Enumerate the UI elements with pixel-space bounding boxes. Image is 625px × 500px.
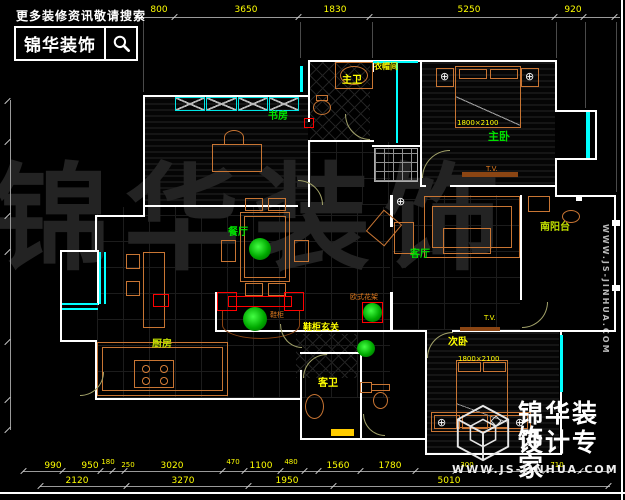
dim-label: 480 (282, 459, 300, 466)
extension-line (585, 22, 586, 108)
window (586, 112, 590, 158)
window (560, 335, 563, 392)
dim-label: 1100 (248, 462, 274, 471)
wall-segment (614, 195, 616, 332)
coffee-table (443, 228, 491, 254)
plant (357, 340, 375, 357)
wall-segment (420, 145, 422, 187)
study-desk (212, 144, 262, 172)
label-second-tv: T.V. (484, 315, 496, 322)
label-flower-stand: 欧式花架 (350, 294, 378, 301)
wash-basin (360, 382, 372, 393)
bath-sink (305, 394, 324, 419)
room-label-master-bath: 主卫 (342, 76, 362, 86)
study-chair (224, 130, 244, 145)
dim-tick (4, 427, 10, 433)
cabinet-x-cell (269, 97, 299, 111)
wall-segment (95, 215, 145, 217)
wall-segment (60, 250, 97, 252)
tv-cabinet (460, 327, 500, 331)
dim-label: 470 (224, 459, 242, 466)
plant (249, 238, 271, 260)
wall-segment (95, 398, 302, 400)
label-second-bed-size: 1800×2100 (458, 356, 500, 363)
extension-line (372, 22, 373, 58)
extension-line (300, 22, 301, 58)
dim-label: 3270 (168, 477, 198, 486)
room-label-kitchen: 厨房 (152, 340, 172, 350)
window (104, 252, 106, 304)
toilet-tank (316, 95, 328, 101)
room-label-master-bedroom: 主卧 (488, 131, 510, 142)
floor-plan-canvas: 锦华装饰 WWW.JS-JINHUA.COM (0, 0, 625, 500)
room-label-second-bedroom: 次卧 (448, 338, 468, 348)
dim-tick (605, 483, 611, 489)
window (300, 66, 303, 92)
footer-logo-icon (452, 402, 514, 464)
drawing-frame-bottom (0, 492, 625, 494)
ceiling-lamp-icon: ⊕ (525, 71, 534, 82)
dim-label: 950 (78, 462, 102, 471)
dim-label: 3020 (158, 462, 186, 471)
dim-label: 2120 (62, 477, 92, 486)
stool (126, 281, 140, 296)
wall-segment (60, 340, 97, 342)
dim-label: 1950 (272, 477, 302, 486)
floor-drain (304, 118, 314, 128)
dim-label: 920 (560, 6, 586, 15)
room-label-balcony: 南阳台 (540, 223, 570, 233)
dining-chair (294, 240, 309, 262)
ceiling-lamp-icon: ⊕ (396, 196, 405, 207)
cabinet-x-cell (175, 97, 205, 111)
door-arc (522, 302, 548, 328)
wall-segment (555, 110, 597, 112)
room-label-entry: 鞋柜玄关 (303, 324, 339, 333)
room-label-living: 客厅 (410, 250, 430, 260)
dining-chair (245, 198, 263, 211)
wall-segment (143, 95, 145, 217)
ceiling-lamp-icon: ⊕ (440, 71, 449, 82)
dim-label: 250 (120, 462, 136, 469)
watermark-text: 锦华装饰 (0, 162, 625, 278)
toilet-tank (371, 384, 390, 391)
wall-segment (60, 250, 62, 342)
dimension-line-top (140, 17, 620, 18)
dining-chair (268, 198, 286, 211)
dim-label: 5010 (432, 477, 466, 486)
wall-segment (360, 352, 362, 440)
footer-url: WWW.JS-JINHUA.COM (452, 463, 619, 476)
wall-segment (300, 352, 362, 354)
watermark-url-vertical: WWW.JS-JINHUA.COM (601, 224, 610, 355)
branding-search-box: 锦华装饰 (14, 26, 138, 61)
window (62, 303, 98, 305)
extension-line (556, 22, 557, 58)
label-master-tv: T.V. (486, 166, 498, 173)
balcony-cabinet (528, 196, 550, 212)
wall-segment (555, 158, 557, 197)
window (396, 63, 398, 143)
window (62, 308, 98, 310)
window (99, 252, 101, 304)
dim-label: 3650 (231, 6, 261, 15)
wall-segment (308, 60, 310, 122)
dim-label: 1780 (376, 462, 404, 471)
branding-tagline: 更多装修资讯敬请搜索 (16, 7, 146, 24)
kitchen-sink (153, 294, 169, 307)
wall-segment (300, 438, 427, 440)
bench (331, 429, 354, 436)
dim-label: 800 (148, 6, 170, 15)
label-shoe-cabinet: 鞋柜 (270, 312, 284, 319)
dining-chair (221, 240, 236, 262)
toilet (313, 100, 331, 115)
room-label-guest-bath: 客卫 (318, 379, 338, 389)
door-arc (363, 414, 385, 436)
wall-segment (555, 60, 557, 112)
cloakroom-shelves (374, 148, 418, 182)
wall-segment (95, 215, 97, 252)
wall-segment (425, 330, 427, 455)
label-master-bed-size: 1800×2100 (457, 120, 499, 127)
room-label-study: 书房 (268, 112, 288, 122)
wall-segment (555, 158, 597, 160)
stove (134, 360, 174, 388)
wall-segment (557, 195, 616, 197)
bed-pillow (483, 362, 506, 372)
dim-label: 990 (40, 462, 66, 471)
wall-segment (308, 140, 374, 142)
branding-logo-text: 锦华装饰 (16, 28, 104, 59)
wall-segment (390, 292, 393, 332)
study-cabinet-row (175, 97, 300, 111)
extension-line (616, 22, 617, 192)
room-label-cloakroom: 衣帽间 (374, 63, 398, 71)
wall-segment (300, 370, 302, 440)
dim-label: 5250 (452, 6, 486, 15)
wall-segment (520, 195, 522, 300)
plant (363, 303, 382, 322)
extension-line (143, 22, 144, 92)
balcony-mullion (612, 220, 620, 226)
bed-pillow (490, 69, 518, 79)
cabinet-x-cell (206, 97, 236, 111)
plant (243, 307, 267, 331)
wall-segment (595, 110, 597, 160)
bed-pillow (459, 69, 487, 79)
wall-segment (420, 60, 422, 145)
stool (126, 254, 140, 269)
bed-pillow (458, 362, 481, 372)
wall-segment (372, 145, 422, 147)
dimension-line-left (10, 100, 11, 430)
dim-label: 1560 (325, 462, 351, 471)
dining-chair (245, 283, 263, 296)
balcony-mullion (576, 195, 582, 201)
dim-label: 180 (100, 459, 116, 466)
dim-label: 1830 (320, 6, 350, 15)
ceiling-lamp-icon: ⊕ (437, 417, 446, 428)
toilet (373, 392, 388, 409)
entry-cabinet-middle (228, 296, 292, 307)
room-label-dining: 餐厅 (228, 228, 248, 238)
search-icon (106, 28, 136, 59)
balcony-mullion (612, 285, 620, 291)
wall-segment (450, 185, 557, 187)
kitchen-island (143, 252, 165, 328)
cabinet-x-cell (238, 97, 268, 111)
